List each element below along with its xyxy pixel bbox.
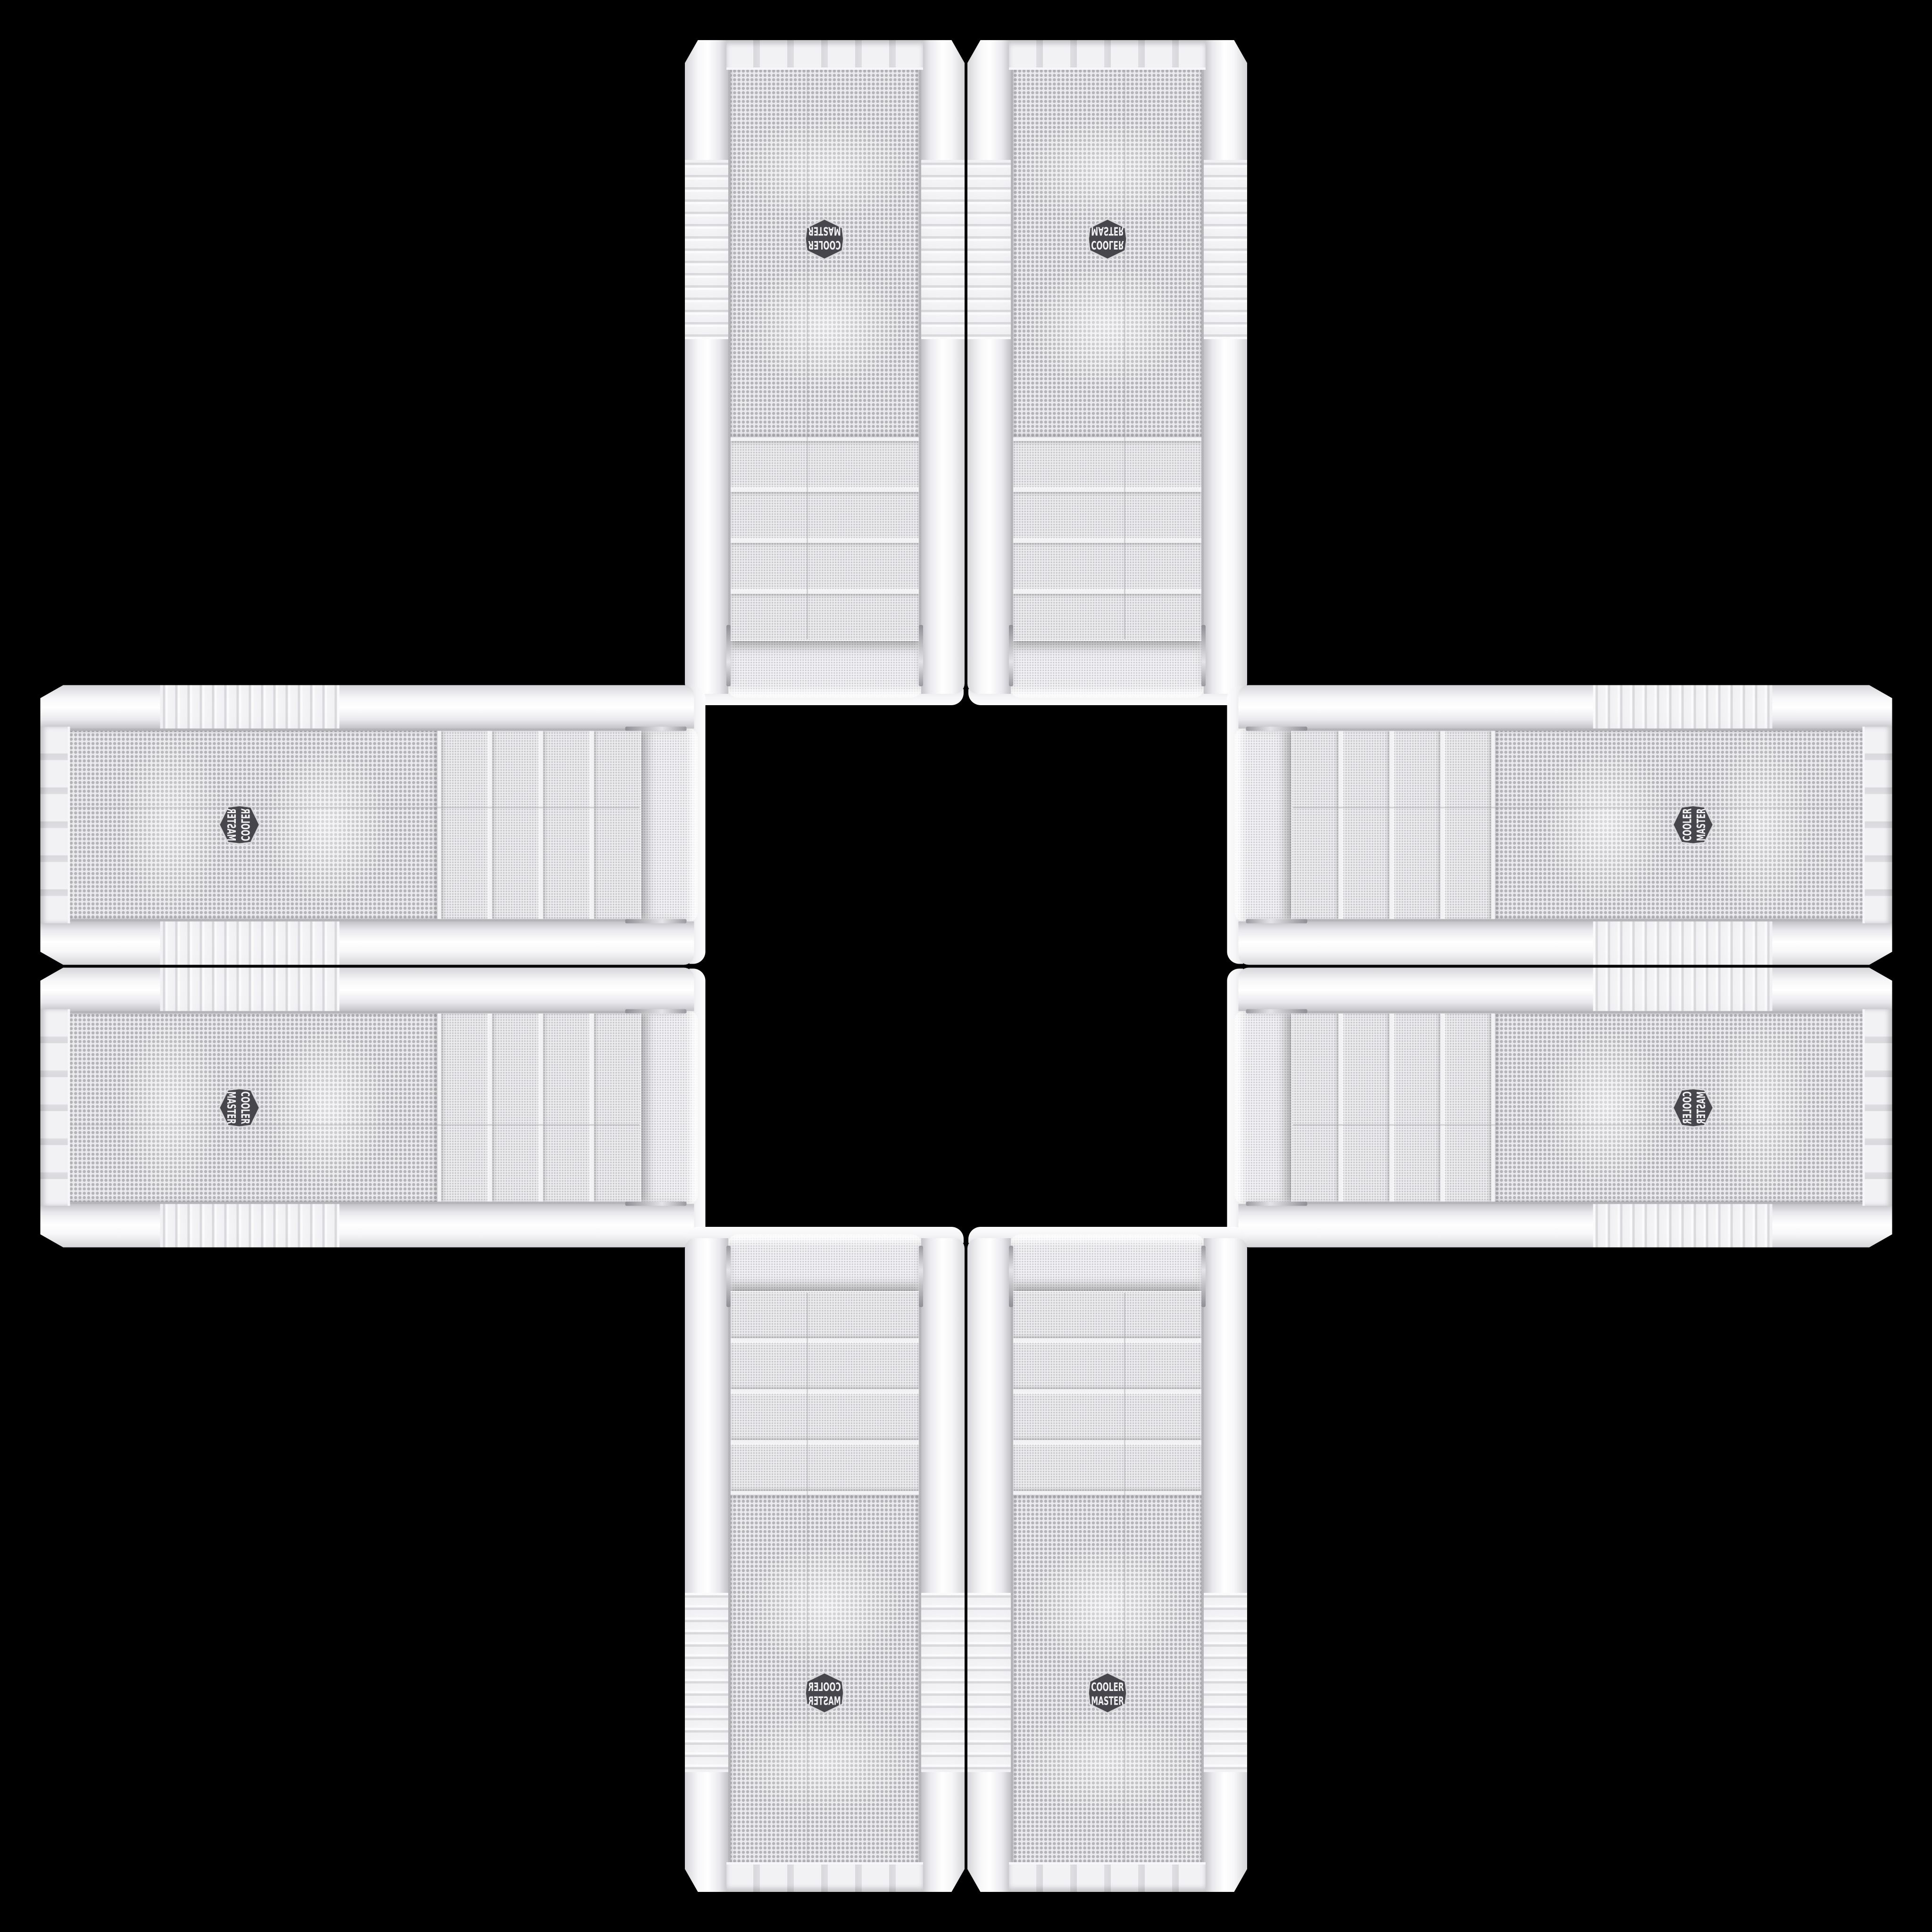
- top-cap-mesh-vent: [1011, 1234, 1204, 1291]
- drive-bay-cover: [1013, 1342, 1201, 1389]
- panel-latch-left: [625, 1009, 686, 1013]
- drive-bay-cover: [731, 543, 919, 590]
- drive-bay-cover: [731, 441, 919, 488]
- bottom-cap-feet: [726, 1862, 923, 1892]
- case-right-bottom: COOLER MASTER: [1227, 967, 1892, 1247]
- cooler-master-badge-icon: COOLER MASTER: [801, 217, 849, 261]
- front-panel-seam: [807, 68, 808, 639]
- side-rail-grille-ribs: [1593, 967, 1772, 1011]
- side-rail-grille-ribs: [160, 1204, 339, 1247]
- cooler-master-badge-icon: COOLER MASTER: [217, 1084, 261, 1131]
- drive-bay-cover: [492, 731, 539, 919]
- panel-latch-right: [625, 726, 686, 731]
- case-side-rail-right: [685, 40, 728, 694]
- drive-bay-cover: [441, 731, 488, 919]
- cooler-master-badge-icon: COOLER MASTER: [1671, 801, 1715, 849]
- case-front-panel: [1011, 1291, 1204, 1865]
- side-rail-grille-ribs: [160, 685, 339, 728]
- drive-bay-cover: [1291, 731, 1338, 919]
- badge-line-master: MASTER: [1694, 808, 1708, 841]
- drive-bay-cover: [1013, 441, 1201, 488]
- case-side-rail-left: [40, 967, 694, 1011]
- side-rail-grille-ribs: [921, 160, 965, 339]
- case-top-left: COOLER MASTER: [685, 40, 965, 705]
- badge-line-cooler: COOLER: [1680, 808, 1694, 841]
- badge-line-cooler: COOLER: [1091, 1680, 1124, 1694]
- case-side-rail-left: [921, 1238, 965, 1892]
- panel-latch-right: [1201, 1246, 1206, 1307]
- bottom-cap-feet: [726, 40, 923, 70]
- cooler-master-badge: COOLER MASTER: [217, 1084, 261, 1131]
- drive-bay-cover: [731, 1291, 919, 1338]
- case-side-rail-right: [685, 1238, 728, 1892]
- case-side-rail-left: [921, 40, 965, 694]
- drive-bay-cover: [1013, 1444, 1201, 1491]
- side-rail-grille-ribs: [160, 921, 339, 965]
- drive-bay-cover: [492, 1013, 539, 1201]
- case-side-rail-left: [1238, 921, 1892, 965]
- drive-bay-cover: [543, 731, 590, 919]
- cooler-master-badge: COOLER MASTER: [801, 1671, 849, 1715]
- side-rail-grille-ribs: [967, 1593, 1011, 1772]
- case-front-panel: [67, 728, 641, 921]
- panel-latch-left: [1246, 919, 1307, 923]
- drive-bay-cover: [1393, 1013, 1440, 1201]
- cooler-master-badge: COOLER MASTER: [1671, 801, 1715, 849]
- panel-latch-right: [726, 625, 731, 686]
- case-side-rail-right: [1204, 40, 1247, 694]
- top-cap-mesh-vent: [728, 1234, 921, 1291]
- drive-bay-cover: [1013, 594, 1201, 641]
- case-front-panel: [1011, 67, 1204, 641]
- top-cap-mesh-vent: [728, 641, 921, 698]
- cooler-master-badge: COOLER MASTER: [1084, 217, 1131, 261]
- panel-latch-left: [1246, 1009, 1307, 1013]
- top-cap-mesh-vent: [1234, 1011, 1291, 1204]
- case-side-rail-left: [967, 1238, 1011, 1892]
- drive-bay-cover: [1013, 492, 1201, 539]
- case-side-rail-right: [1238, 685, 1892, 728]
- side-rail-grille-ribs: [1593, 685, 1772, 728]
- case-side-rail-left: [40, 921, 694, 965]
- cooler-master-badge: COOLER MASTER: [1671, 1084, 1715, 1131]
- front-panel-seam: [1293, 807, 1864, 808]
- front-panel-seam: [1124, 1293, 1125, 1864]
- case-front-panel: [1291, 728, 1865, 921]
- bottom-cap-feet: [1862, 726, 1892, 923]
- case-front-panel: [1291, 1011, 1865, 1204]
- bottom-cap-feet: [1009, 40, 1206, 70]
- drive-bay-cover: [731, 594, 919, 641]
- side-rail-grille-ribs: [685, 160, 728, 339]
- case-left-top: COOLER MASTER: [40, 685, 705, 965]
- drive-bay-cover: [731, 1393, 919, 1440]
- panel-latch-left: [625, 919, 686, 923]
- panel-latch-right: [1246, 726, 1307, 731]
- panel-latch-left: [1009, 1246, 1013, 1307]
- case-side-rail-right: [1238, 1204, 1892, 1247]
- case-front-panel: [728, 67, 921, 641]
- drive-bay-cover: [594, 731, 641, 919]
- badge-line-cooler: COOLER: [1680, 1091, 1694, 1124]
- drive-bay-cover: [594, 1013, 641, 1201]
- drive-bay-cover: [1013, 1393, 1201, 1440]
- case-side-rail-left: [967, 40, 1011, 694]
- case-side-rail-right: [40, 1204, 694, 1247]
- panel-latch-right: [625, 1201, 686, 1206]
- top-cap-mesh-vent: [641, 1011, 698, 1204]
- product-collage-scene: COOLER MASTER: [0, 0, 1932, 1932]
- badge-line-cooler: COOLER: [1091, 238, 1124, 252]
- drive-bay-cover: [1342, 1013, 1389, 1201]
- drive-bay-cover: [1013, 543, 1201, 590]
- drive-bay-cover: [1444, 731, 1491, 919]
- badge-line-master: MASTER: [1091, 224, 1124, 238]
- badge-line-master: MASTER: [1091, 1694, 1124, 1708]
- case-side-rail-left: [1238, 967, 1892, 1011]
- side-rail-grille-ribs: [1593, 921, 1772, 965]
- bottom-cap-feet: [40, 726, 70, 923]
- drive-bay-cover: [1291, 1013, 1338, 1201]
- badge-line-master: MASTER: [808, 224, 841, 238]
- front-panel-seam: [1124, 68, 1125, 639]
- case-bottom-left: COOLER MASTER: [685, 1227, 965, 1892]
- drive-bay-cover: [441, 1013, 488, 1201]
- drive-bay-cover: [1013, 1291, 1201, 1338]
- cooler-master-badge-icon: COOLER MASTER: [217, 801, 261, 849]
- side-rail-grille-ribs: [1204, 1593, 1247, 1772]
- side-rail-grille-ribs: [967, 160, 1011, 339]
- cooler-master-badge-icon: COOLER MASTER: [1084, 217, 1131, 261]
- cooler-master-badge-icon: COOLER MASTER: [1671, 1084, 1715, 1131]
- case-left-bottom: COOLER MASTER: [40, 967, 705, 1247]
- panel-latch-right: [1201, 625, 1206, 686]
- side-rail-grille-ribs: [685, 1593, 728, 1772]
- badge-line-master: MASTER: [808, 1694, 841, 1708]
- panel-latch-right: [726, 1246, 731, 1307]
- top-cap-mesh-vent: [1234, 728, 1291, 921]
- panel-latch-left: [919, 625, 923, 686]
- side-rail-grille-ribs: [921, 1593, 965, 1772]
- front-panel-seam: [1293, 1124, 1864, 1125]
- drive-bay-cover: [731, 1342, 919, 1389]
- case-front-panel: [67, 1011, 641, 1204]
- badge-line-cooler: COOLER: [808, 1680, 841, 1694]
- case-top-right: COOLER MASTER: [967, 40, 1247, 705]
- case-side-rail-right: [1204, 1238, 1247, 1892]
- drive-bay-cover: [731, 492, 919, 539]
- badge-line-cooler: COOLER: [808, 238, 841, 252]
- side-rail-grille-ribs: [1593, 1204, 1772, 1247]
- case-bottom-right: COOLER MASTER: [967, 1227, 1247, 1892]
- drive-bay-cover: [1393, 731, 1440, 919]
- bottom-cap-feet: [1009, 1862, 1206, 1892]
- bottom-cap-feet: [40, 1009, 70, 1206]
- panel-latch-left: [1009, 625, 1013, 686]
- cooler-master-badge: COOLER MASTER: [1084, 1671, 1131, 1715]
- badge-line-master: MASTER: [224, 808, 238, 841]
- bottom-cap-feet: [1862, 1009, 1892, 1206]
- badge-line-cooler: COOLER: [238, 808, 252, 841]
- case-front-panel: [728, 1291, 921, 1865]
- badge-line-master: MASTER: [224, 1091, 238, 1124]
- cooler-master-badge: COOLER MASTER: [217, 801, 261, 849]
- drive-bay-cover: [543, 1013, 590, 1201]
- panel-latch-left: [919, 1246, 923, 1307]
- panel-latch-right: [1246, 1201, 1307, 1206]
- case-right-top: COOLER MASTER: [1227, 685, 1892, 965]
- front-panel-seam: [807, 1293, 808, 1864]
- cooler-master-badge-icon: COOLER MASTER: [1084, 1671, 1131, 1715]
- side-rail-grille-ribs: [160, 967, 339, 1011]
- drive-bay-cover: [731, 1444, 919, 1491]
- front-panel-seam: [68, 1124, 639, 1125]
- drive-bay-cover: [1444, 1013, 1491, 1201]
- cooler-master-badge-icon: COOLER MASTER: [801, 1671, 849, 1715]
- front-panel-seam: [68, 807, 639, 808]
- side-rail-grille-ribs: [1204, 160, 1247, 339]
- top-cap-mesh-vent: [1011, 641, 1204, 698]
- badge-line-cooler: COOLER: [238, 1091, 252, 1124]
- drive-bay-cover: [1342, 731, 1389, 919]
- badge-line-master: MASTER: [1694, 1091, 1708, 1124]
- top-cap-mesh-vent: [641, 728, 698, 921]
- cooler-master-badge: COOLER MASTER: [801, 217, 849, 261]
- case-side-rail-right: [40, 685, 694, 728]
